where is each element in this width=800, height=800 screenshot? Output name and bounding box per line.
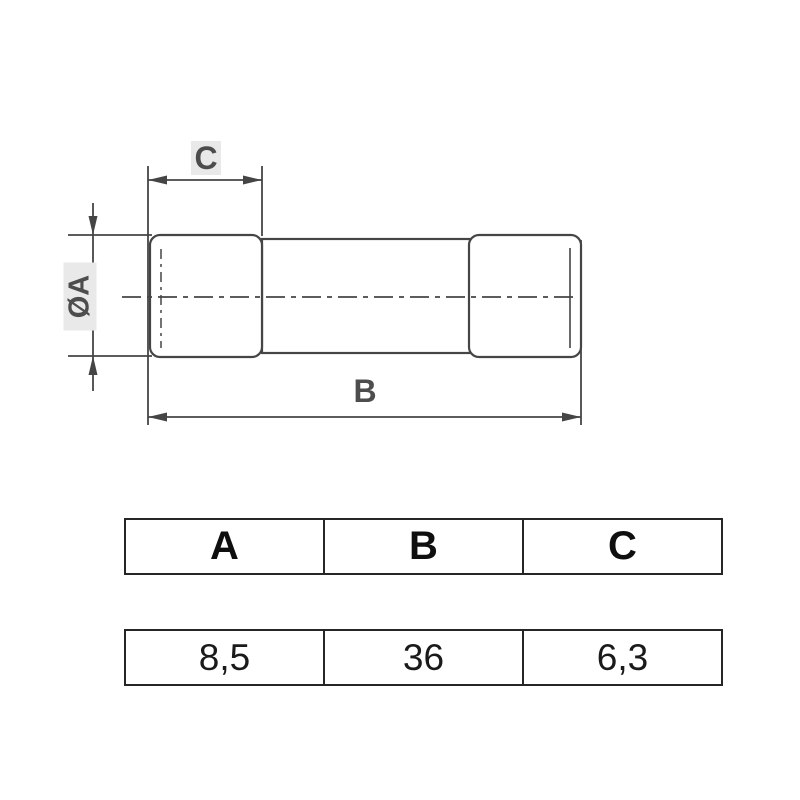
fuse-left-cap: [150, 235, 262, 357]
dim-b-arrow-right: [562, 413, 581, 422]
fuse-dimension-sheet: C ØA B A B C 8,5 36 6,3: [0, 0, 800, 800]
dim-c-arrow-left: [148, 176, 167, 185]
dim-c-arrow-right: [243, 176, 262, 185]
dimensions-table-value-row: 8,5 36 6,3: [124, 629, 723, 686]
dim-b-arrow-left: [148, 413, 167, 422]
table-value-a: 8,5: [126, 631, 323, 684]
dim-label-c: C: [191, 141, 221, 175]
table-value-c: 6,3: [522, 631, 721, 684]
table-header-a: A: [126, 520, 323, 573]
table-header-c: C: [522, 520, 721, 573]
dim-dia-arrow-bottom: [89, 356, 98, 375]
table-header-b: B: [323, 520, 522, 573]
dimensions-table-header-row: A B C: [124, 518, 723, 575]
table-value-b: 36: [323, 631, 522, 684]
dim-label-b: B: [347, 374, 383, 408]
dim-label-diameter: ØA: [64, 263, 97, 331]
dim-dia-arrow-top: [89, 216, 98, 235]
fuse-body: [262, 239, 470, 353]
fuse-right-cap: [469, 235, 581, 357]
